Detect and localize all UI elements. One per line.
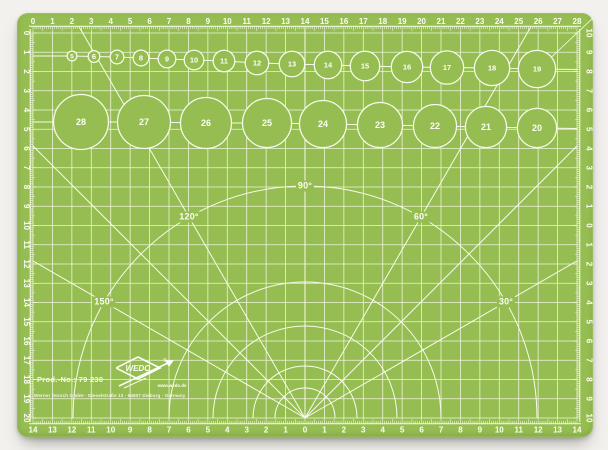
brand-url: www.wedo.de [157, 383, 187, 388]
product-photo-background: 0123456789101112131415161718192021222324… [0, 0, 608, 450]
product-number: Prod.-No.: 79 230 [37, 375, 103, 384]
angle-label: 90° [296, 181, 314, 192]
wedo-logo-diamond-icon: WEDO ® www.wedo.de [116, 356, 188, 396]
angle-label: 150° [92, 297, 115, 308]
angle-label: 60° [412, 212, 430, 223]
angle-label: 120° [177, 212, 200, 223]
registered-mark: ® [163, 357, 167, 364]
brand-text: WEDO [126, 364, 152, 373]
cutting-mat: 0123456789101112131415161718192021222324… [17, 13, 593, 437]
angle-label: 30° [497, 297, 515, 308]
mat-overlay: 90°120°60°150°30° Prod.-No.: 79 230 Wern… [17, 13, 593, 437]
wedo-logo: WEDO ® www.wedo.de [116, 356, 188, 396]
